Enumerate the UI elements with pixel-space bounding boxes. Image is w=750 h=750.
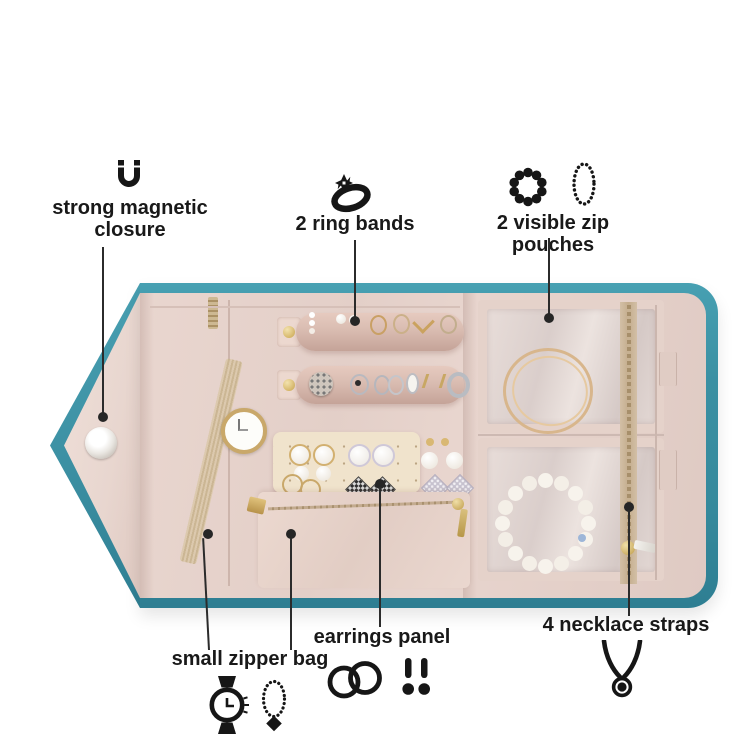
gold-ring	[370, 315, 387, 335]
gold-stud	[441, 438, 449, 446]
pointer-line	[628, 510, 630, 616]
pearl-stud	[421, 452, 438, 469]
blue-bead	[578, 534, 586, 542]
necklace-straps-label: 4 necklace straps	[536, 614, 716, 636]
magnetic-snap-button	[85, 427, 117, 459]
necklace-strap	[659, 352, 677, 386]
pearl-stud	[316, 466, 331, 481]
pendant-necklace-icon	[599, 640, 645, 703]
beaded-bracelet-icon	[508, 164, 548, 213]
gold-ring	[393, 314, 410, 334]
pointer-dot	[203, 529, 213, 539]
pointer-dot	[544, 313, 554, 323]
watch-icon	[206, 676, 250, 739]
gold-ring	[440, 315, 457, 334]
bead-pendant-icon	[257, 678, 291, 739]
black-gem	[355, 380, 361, 386]
marquise-ring	[406, 373, 419, 394]
pointer-line	[102, 247, 104, 415]
gold-pearl-stud	[313, 444, 335, 466]
gold-snap	[283, 379, 295, 391]
flower-ring	[309, 372, 333, 396]
pearl-stud	[336, 314, 346, 324]
necklace-strap	[659, 450, 677, 490]
wide-silver-ring	[447, 372, 470, 398]
pearl-ring	[309, 312, 315, 318]
crystal-pearl-stud	[348, 444, 371, 467]
fold-seam	[140, 293, 154, 598]
ring-bands-label: 2 ring bands	[280, 213, 430, 235]
pointer-line	[379, 487, 381, 627]
earrings-panel-label: earrings panel	[312, 626, 452, 648]
watch-face	[221, 408, 267, 454]
product-infographic: strong magnetic closure 2 ring bands	[0, 0, 750, 750]
beaded-necklace-icon	[570, 160, 598, 213]
pointer-line	[290, 538, 292, 650]
magnetic-closure-label: strong magnetic closure	[35, 197, 225, 242]
gold-pearl-stud	[289, 444, 311, 466]
edge-seam	[655, 305, 657, 580]
silver-ring	[388, 375, 404, 395]
stud-earrings-icon	[401, 657, 433, 702]
pearl-bracelet	[581, 516, 596, 531]
pointer-line	[548, 238, 550, 316]
crystal-pearl-stud	[372, 444, 395, 467]
pointer-line	[354, 240, 356, 320]
zip-pouches-label: 2 visible zip pouches	[453, 212, 653, 257]
pointer-dot	[350, 316, 360, 326]
top-seam	[150, 306, 460, 308]
small-zipper-bag-label: small zipper bag	[165, 648, 335, 670]
gold-stud	[426, 438, 434, 446]
magnet-icon	[114, 155, 144, 202]
pearl-stud	[446, 452, 463, 469]
pointer-dot	[98, 412, 108, 422]
side-zipper	[208, 297, 218, 329]
watch-hands	[238, 419, 248, 431]
gold-snap	[283, 326, 295, 338]
diamond-ring-icon	[324, 172, 378, 219]
